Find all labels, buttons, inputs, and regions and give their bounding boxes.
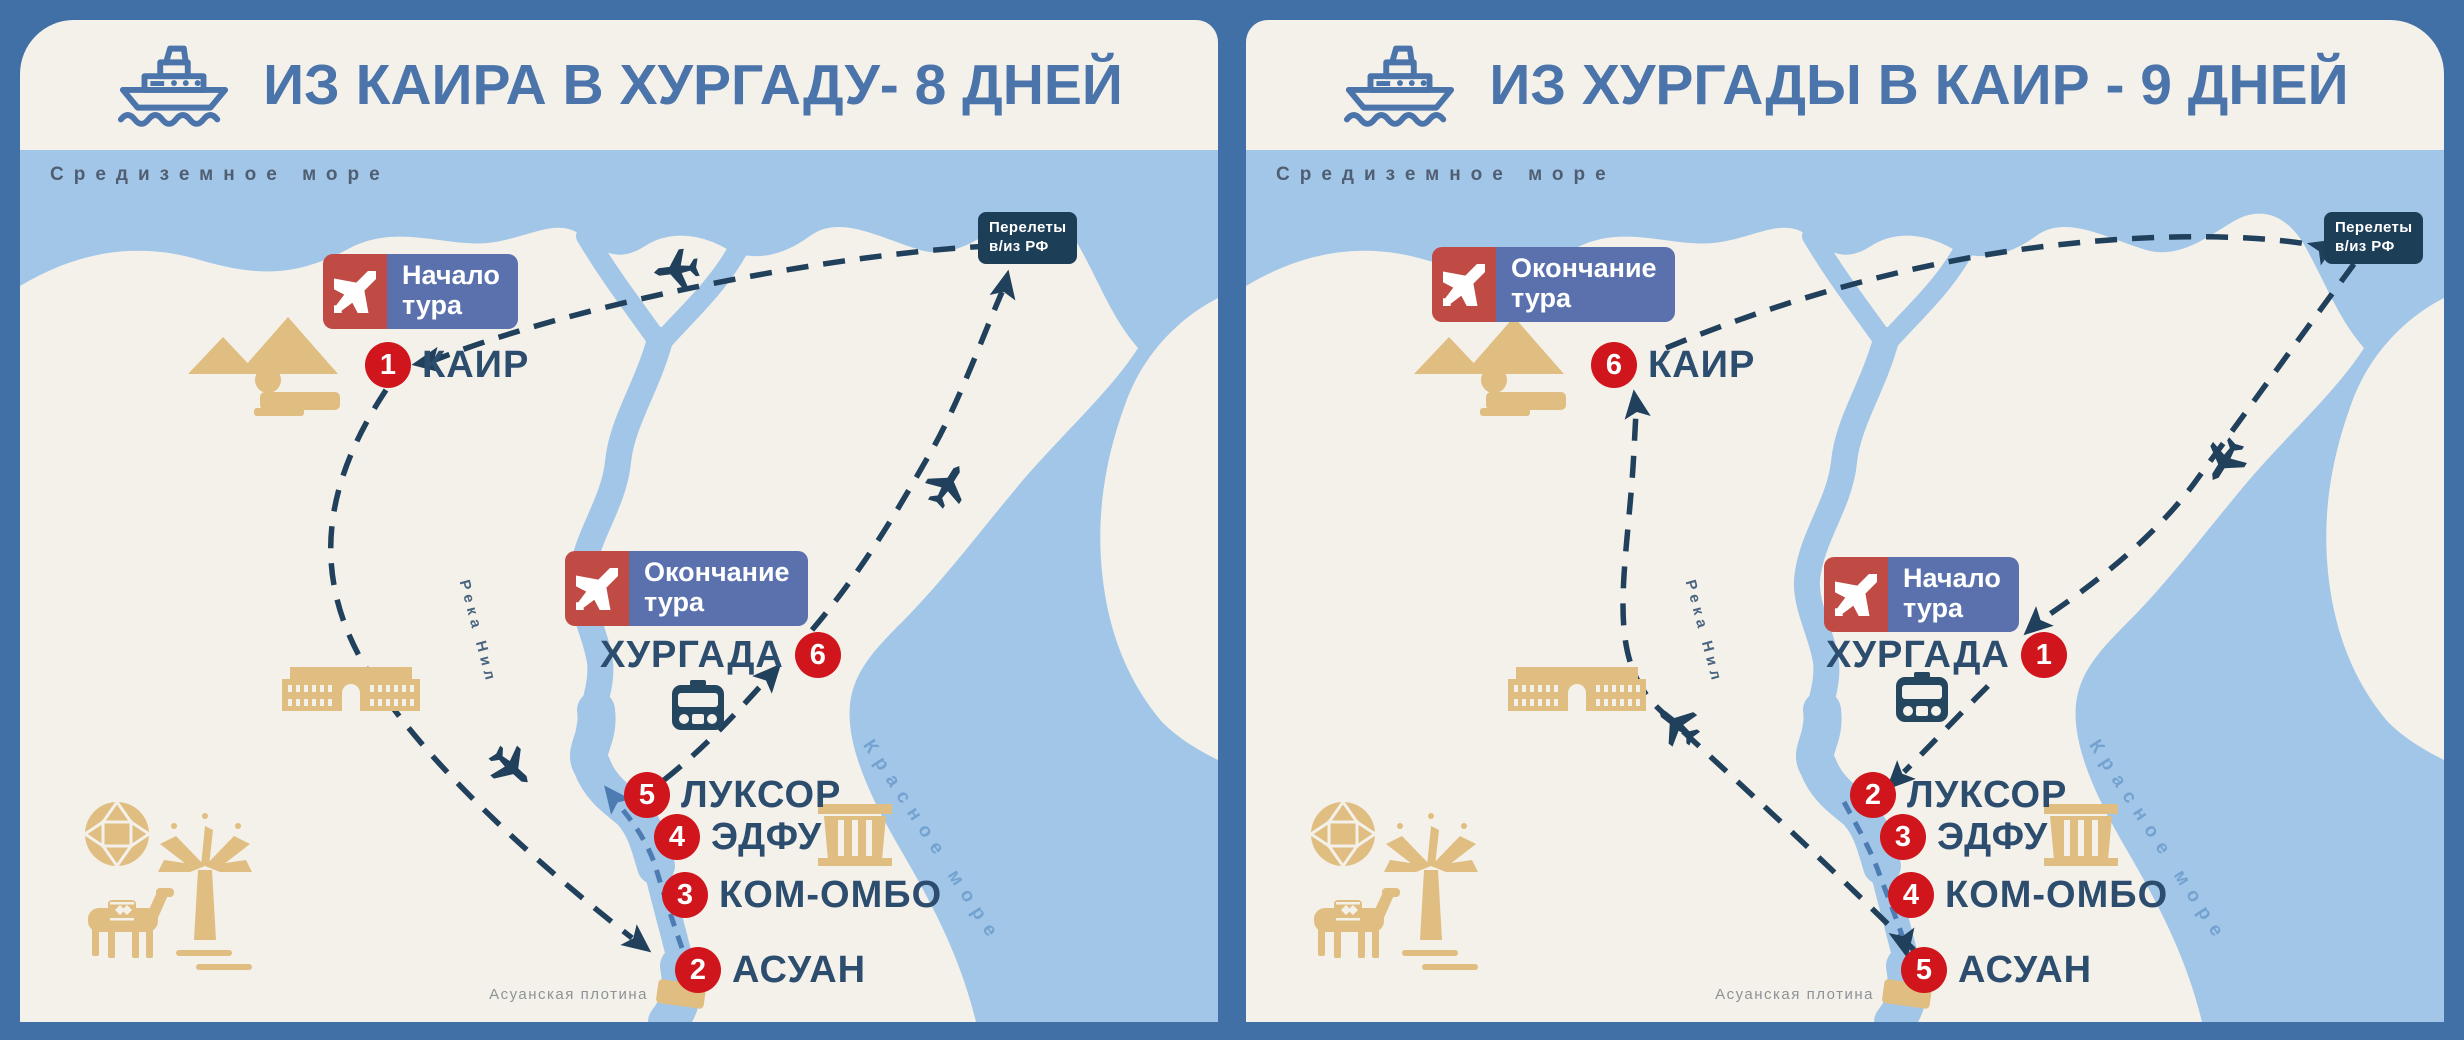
- stop-number-badge: 1: [365, 342, 411, 388]
- city-marker-edfu: 4 ЭДФУ: [654, 814, 822, 860]
- flights-badge: Перелеты в/из РФ: [2324, 212, 2423, 264]
- map-hurghada-to-cairo: Средиземное море Красное море Река Нил А…: [1246, 150, 2444, 1022]
- gem-icon: [1311, 802, 1375, 866]
- city-marker-aswan: 5 АСУАН: [1901, 947, 2092, 993]
- stop-number-badge: 5: [624, 772, 670, 818]
- tour-end-badge: Окончание тура: [565, 551, 808, 626]
- stop-number-badge: 2: [1850, 772, 1896, 818]
- city-marker-kom-ombo: 4 КОМ-ОМБО: [1888, 872, 2168, 918]
- plane-badge-icon: [565, 551, 629, 626]
- tour-end-badge: Окончание тура: [1432, 247, 1675, 322]
- stop-number-badge: 4: [654, 814, 700, 860]
- stop-number-badge: 5: [1901, 947, 1947, 993]
- plane-badge-icon: [323, 254, 387, 329]
- map-card-cairo-to-hurghada: ИЗ КАИРА В ХУРГАДУ- 8 ДНЕЙ: [20, 20, 1218, 1022]
- mediterranean-sea-label: Средиземное море: [50, 164, 390, 186]
- stop-number-badge: 2: [675, 947, 721, 993]
- tour-start-badge: Начало тура: [1824, 557, 2019, 632]
- mediterranean-sea-label: Средиземное море: [1276, 164, 1616, 186]
- plane-badge-icon: [1432, 247, 1496, 322]
- city-marker-aswan: 2 АСУАН: [675, 947, 866, 993]
- cruise-ship-icon: [1341, 42, 1459, 128]
- stop-number-badge: 3: [662, 872, 708, 918]
- flights-badge: Перелеты в/из РФ: [978, 212, 1077, 264]
- stop-number-badge: 4: [1888, 872, 1934, 918]
- city-marker-cairo: 6 КАИР: [1591, 342, 1755, 388]
- city-marker-luxor: 2 ЛУКСОР: [1850, 772, 2067, 818]
- city-marker-hurghada: ХУРГАДА 1: [1826, 632, 2067, 678]
- aswan-dam-label: Асуанская плотина: [1634, 986, 1874, 1003]
- stop-number-badge: 6: [1591, 342, 1637, 388]
- map-title: ИЗ КАИРА В ХУРГАДУ- 8 ДНЕЙ: [263, 52, 1123, 118]
- plane-badge-icon: [1824, 557, 1888, 632]
- palace-icon: [282, 667, 420, 711]
- city-marker-edfu: 3 ЭДФУ: [1880, 814, 2048, 860]
- map-header: ИЗ ХУРГАДЫ В КАИР - 9 ДНЕЙ: [1246, 20, 2444, 150]
- stop-number-badge: 3: [1880, 814, 1926, 860]
- palace-icon: [1508, 667, 1646, 711]
- map-title: ИЗ ХУРГАДЫ В КАИР - 9 ДНЕЙ: [1489, 52, 2348, 118]
- aswan-dam-label: Асуанская плотина: [408, 986, 648, 1003]
- city-marker-cairo: 1 КАИР: [365, 342, 529, 388]
- bus-icon: [1896, 672, 1948, 722]
- map-cairo-to-hurghada: Средиземное море Красное море Река Нил А…: [20, 150, 1218, 1022]
- map-card-hurghada-to-cairo: ИЗ ХУРГАДЫ В КАИР - 9 ДНЕЙ: [1246, 20, 2444, 1022]
- city-marker-kom-ombo: 3 КОМ-ОМБО: [662, 872, 942, 918]
- stop-number-badge: 1: [2021, 632, 2067, 678]
- cruise-ship-icon: [115, 42, 233, 128]
- bus-icon: [672, 680, 724, 730]
- map-header: ИЗ КАИРА В ХУРГАДУ- 8 ДНЕЙ: [20, 20, 1218, 150]
- city-marker-luxor: 5 ЛУКСОР: [624, 772, 841, 818]
- stop-number-badge: 6: [795, 632, 841, 678]
- tour-maps-board: ИЗ КАИРА В ХУРГАДУ- 8 ДНЕЙ: [0, 0, 2464, 1022]
- city-marker-hurghada: ХУРГАДА 6: [600, 632, 841, 678]
- tour-start-badge: Начало тура: [323, 254, 518, 329]
- gem-icon: [85, 802, 149, 866]
